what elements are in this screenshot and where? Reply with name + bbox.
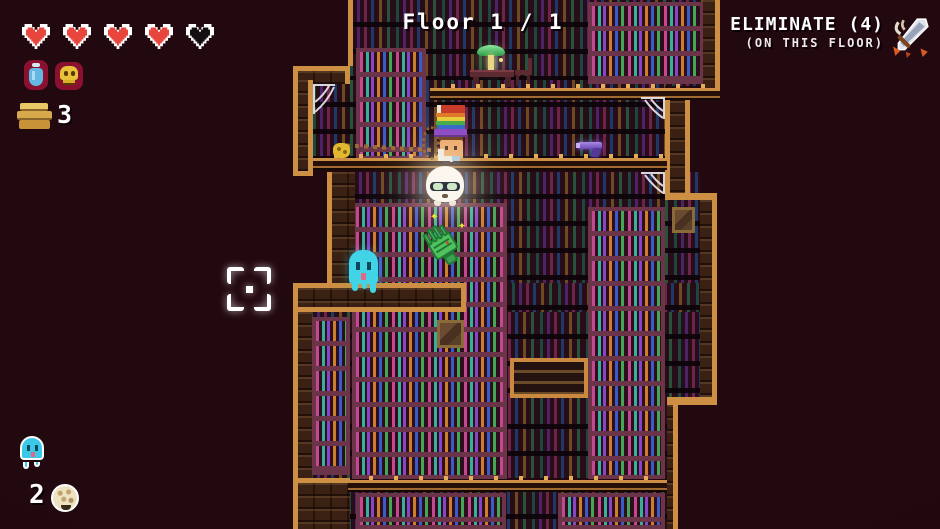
heart-full-icon [22, 24, 50, 49]
crossed-weapons-icon [890, 16, 932, 58]
books-icon [17, 103, 52, 129]
book-count: 3 [57, 100, 73, 129]
puff-count: 2 [29, 480, 46, 510]
crosshair-reticle [227, 267, 271, 311]
heart-full-icon [104, 24, 132, 49]
puff-icon [51, 484, 79, 512]
hud-overlay: 3 Floor 1 / 1 ELIMINATE (4) (ON THIS FLO… [0, 0, 940, 529]
floor-label: Floor 1 / 1 [350, 10, 616, 34]
heart-empty-icon [186, 24, 214, 49]
game-screen: ✦ ✦ 3 [0, 0, 940, 529]
heart-full-icon [145, 24, 173, 49]
heart-full-icon [63, 24, 91, 49]
potion-icon [24, 60, 48, 90]
skull-icon [55, 62, 83, 90]
objective-panel: ELIMINATE (4) (ON THIS FLOOR) [694, 14, 934, 50]
health-hearts [22, 24, 214, 49]
ghost-icon [20, 436, 48, 468]
